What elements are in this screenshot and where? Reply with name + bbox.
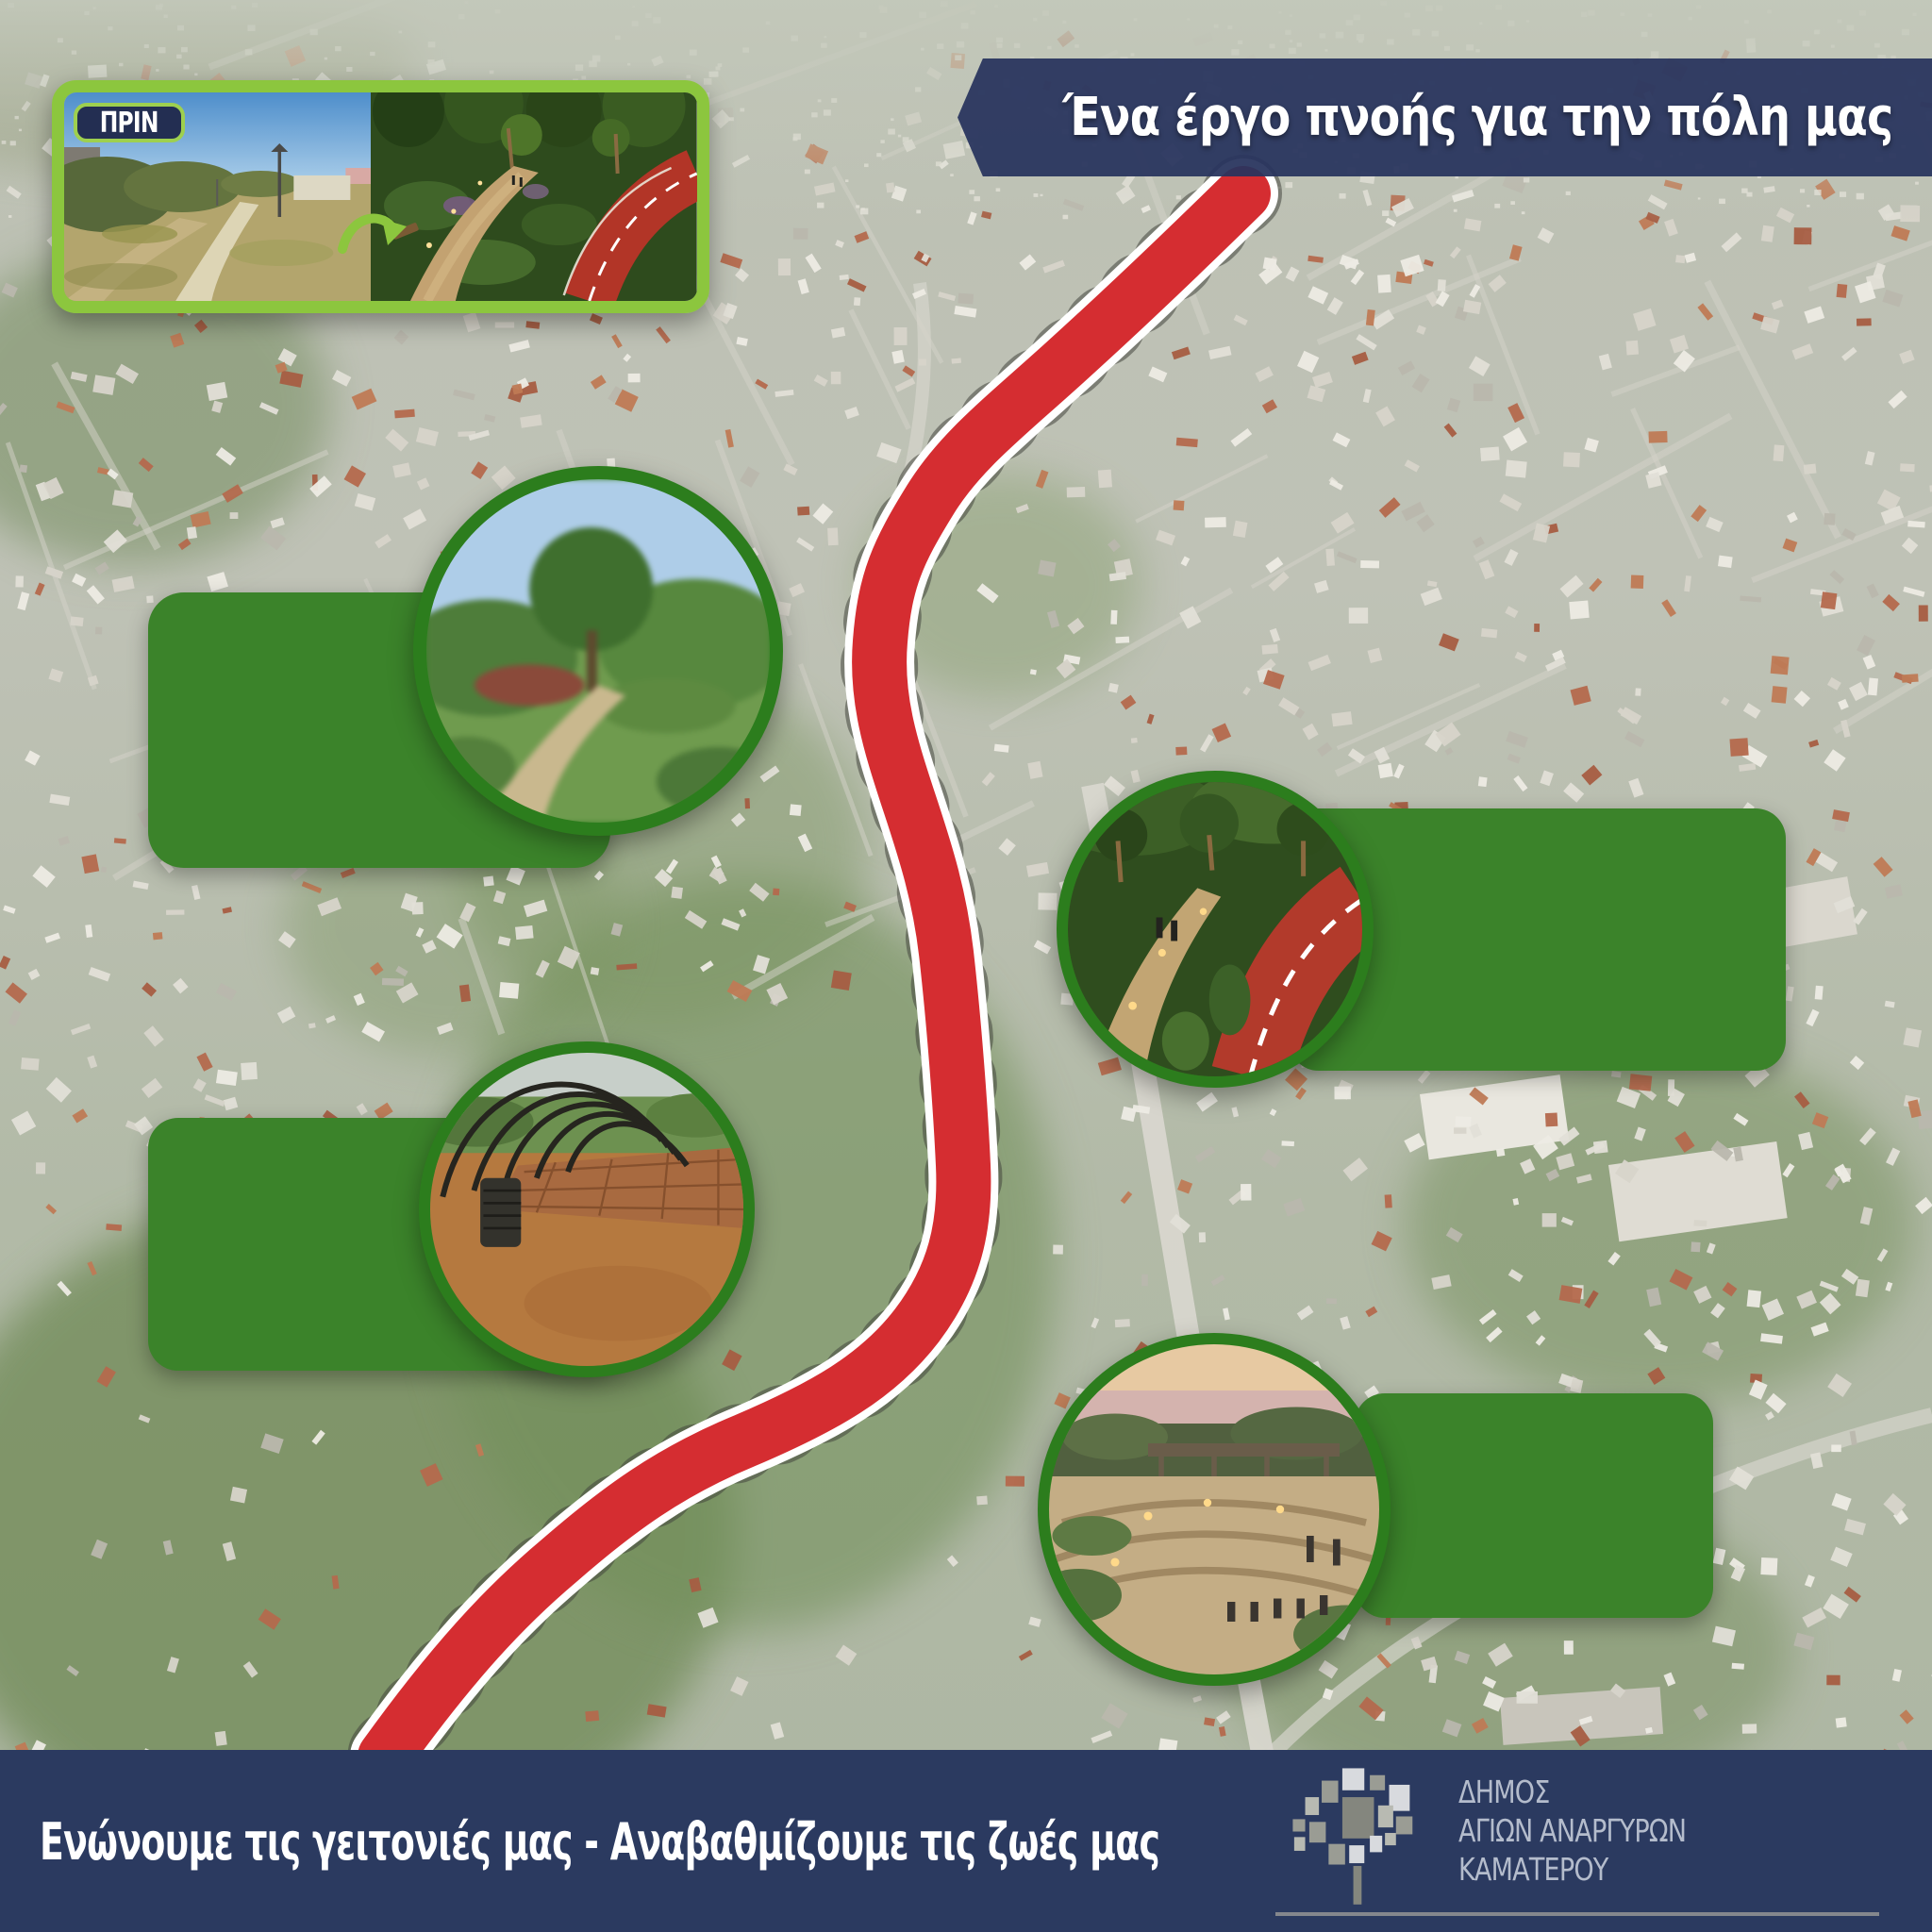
municipality-tree-logo bbox=[1274, 1761, 1439, 1920]
callout-image-event-amphitheater bbox=[1038, 1333, 1391, 1686]
after-badge: ΜΕΤΑ bbox=[707, 103, 709, 141]
municipality-line-3: ΚΑΜΑΤΕΡΟΥ bbox=[1458, 1850, 1608, 1889]
poster: ΠΡΙΝ bbox=[0, 0, 1932, 1932]
before-photo: ΠΡΙΝ bbox=[64, 92, 371, 301]
municipality-logo: ΔΗΜΟΣ ΑΓΙΩΝ ΑΝΑΡΓΥΡΩΝ ΚΑΜΑΤΕΡΟΥ bbox=[1274, 1756, 1896, 1925]
callout-box-event-spaces bbox=[1355, 1393, 1713, 1618]
before-after-frame: ΠΡΙΝ bbox=[52, 80, 709, 313]
title-banner: Ένα έργο πνοής για την πόλη μας bbox=[958, 58, 1932, 176]
callout-image-pergola-walkway bbox=[419, 1041, 755, 1377]
before-badge-label: ΠΡΙΝ bbox=[100, 107, 158, 140]
callout-image-mixed-walk-bike-path bbox=[1057, 771, 1374, 1088]
before-badge: ΠΡΙΝ bbox=[74, 103, 185, 142]
mixed-walk-bike-path-render bbox=[1068, 782, 1362, 1076]
callout-image-park-path-render bbox=[413, 466, 783, 836]
event-amphitheater-render bbox=[1049, 1344, 1379, 1674]
park-path-render bbox=[426, 479, 770, 823]
after-photo: ΜΕΤΑ bbox=[371, 92, 697, 301]
banner-title: Ένα έργο πνοής για την πόλη μας bbox=[1063, 87, 1893, 148]
logo-baseline bbox=[1275, 1912, 1879, 1916]
footer-bar: Ενώνουμε τις γειτονιές μας - Αναβαθμίζου… bbox=[0, 1750, 1932, 1932]
footer-tagline-text: Ενώνουμε τις γειτονιές μας - Αναβαθμίζου… bbox=[40, 1812, 1159, 1872]
curved-arrow-icon bbox=[335, 204, 412, 262]
pergola-walkway-photo bbox=[430, 1053, 743, 1366]
municipality-line-1: ΔΗΜΟΣ bbox=[1458, 1773, 1550, 1811]
municipality-name: ΔΗΜΟΣ ΑΓΙΩΝ ΑΝΑΡΓΥΡΩΝ ΚΑΜΑΤΕΡΟΥ bbox=[1458, 1773, 1736, 1889]
after-photo-image bbox=[371, 92, 697, 301]
municipality-line-2: ΑΓΙΩΝ ΑΝΑΡΓΥΡΩΝ bbox=[1458, 1811, 1686, 1850]
